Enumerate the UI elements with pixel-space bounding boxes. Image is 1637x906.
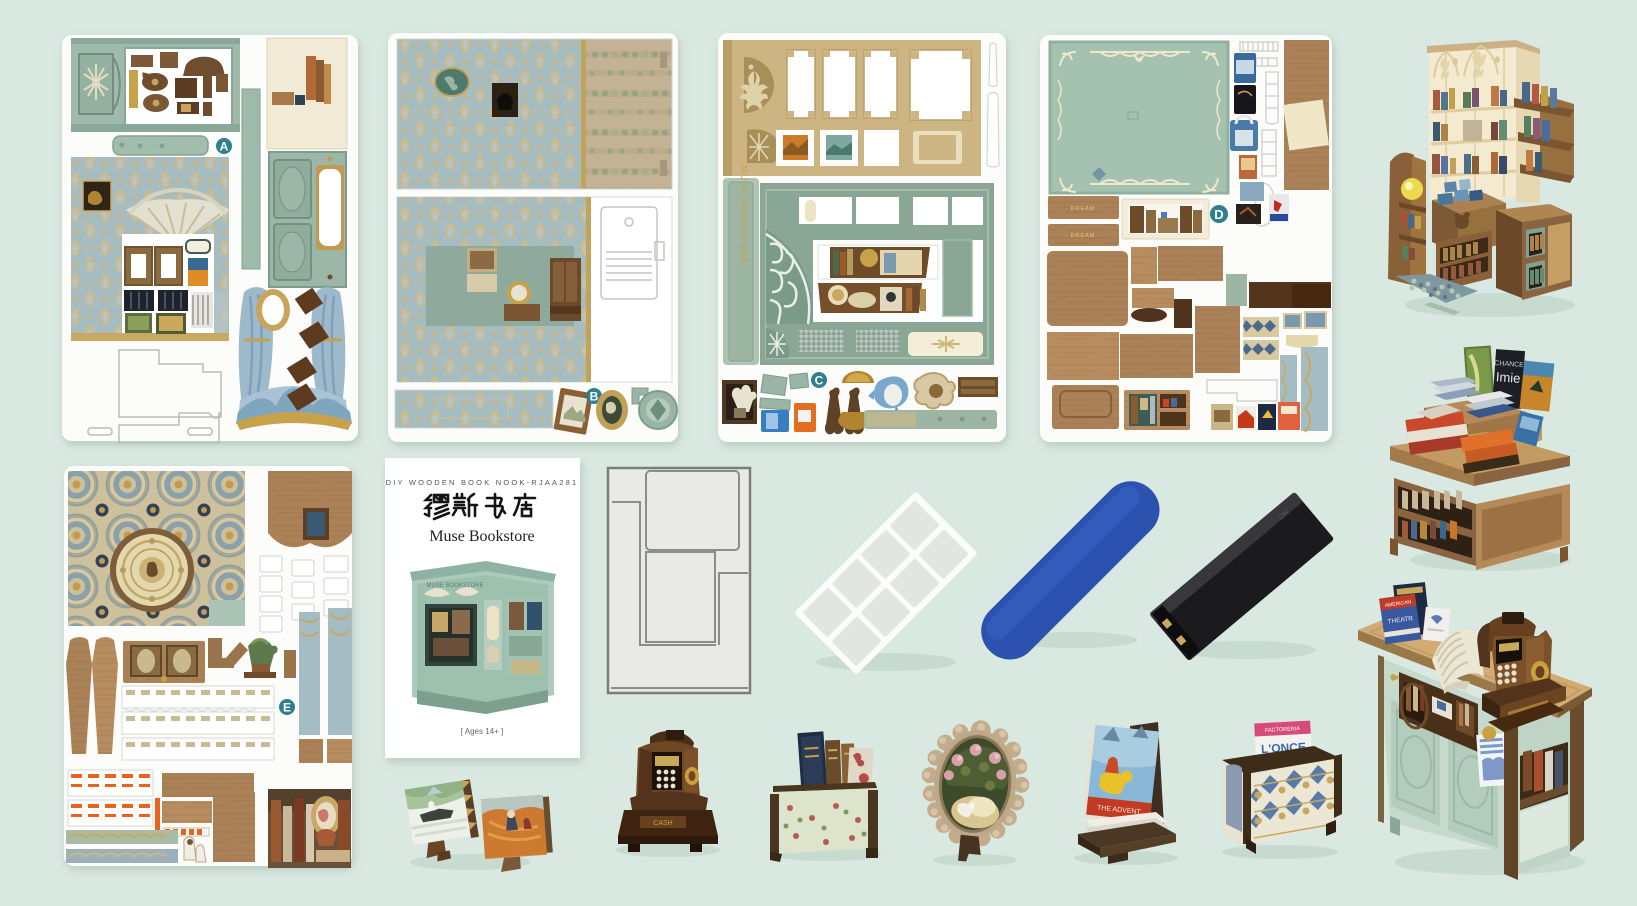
svg-text:Muse Bookstore: Muse Bookstore bbox=[429, 528, 534, 545]
svg-text:Imie: Imie bbox=[1495, 369, 1521, 386]
svg-text:· DREAM ·: · DREAM · bbox=[1065, 233, 1101, 239]
svg-text:CASH: CASH bbox=[653, 820, 672, 827]
svg-text:[ Ages 14+ ]: [ Ages 14+ ] bbox=[461, 727, 503, 736]
svg-text:· DREAM ·: · DREAM · bbox=[1065, 206, 1101, 212]
svg-text:MUSE BOOKSTORE: MUSE BOOKSTORE bbox=[739, 165, 749, 264]
svg-text:A: A bbox=[220, 140, 229, 154]
svg-text:D: D bbox=[1214, 207, 1223, 222]
svg-text:E: E bbox=[283, 701, 291, 715]
svg-text:C: C bbox=[815, 374, 824, 388]
svg-text:B: B bbox=[590, 390, 599, 404]
svg-text:MUSE BOOKSTORE: MUSE BOOKSTORE bbox=[427, 583, 484, 589]
svg-text:DIY WOODEN BOOK NOOK-RJAA281: DIY WOODEN BOOK NOOK-RJAA281 bbox=[386, 478, 579, 487]
